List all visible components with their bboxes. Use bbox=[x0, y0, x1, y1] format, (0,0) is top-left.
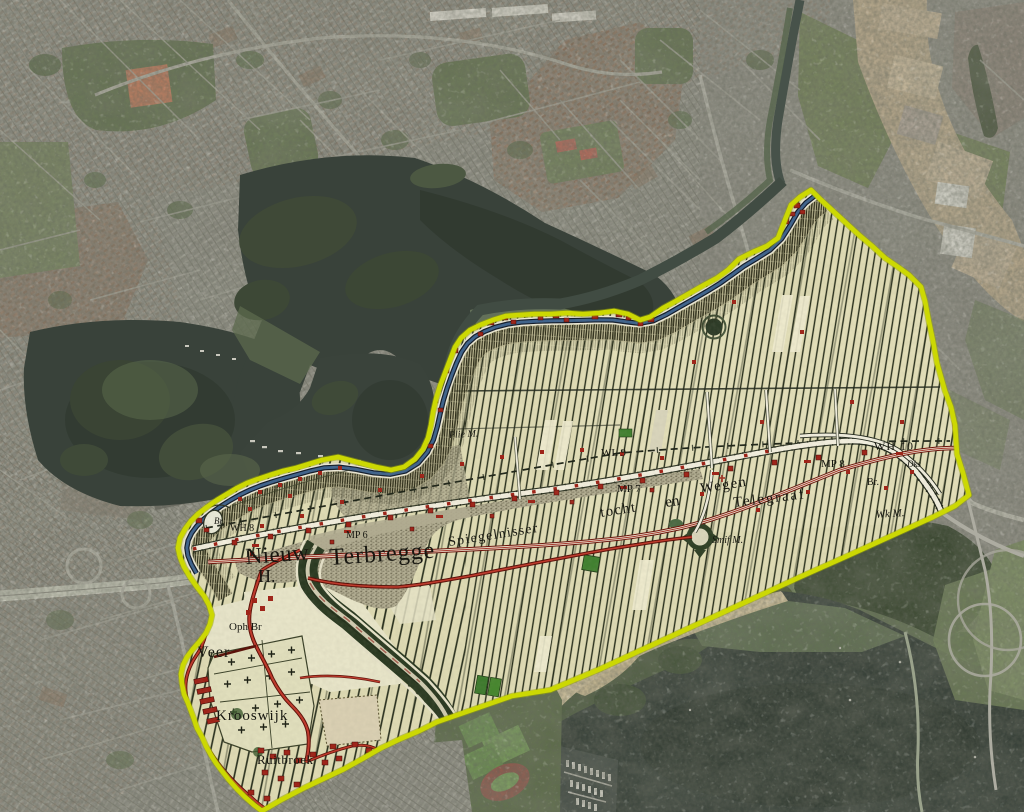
svg-text:Wk M.: Wk M. bbox=[875, 507, 904, 521]
svg-text:WL 9: WL 9 bbox=[601, 447, 626, 459]
svg-text:Ruitbroek: Ruitbroek bbox=[257, 752, 314, 767]
svg-text:WH 10: WH 10 bbox=[874, 439, 914, 453]
svg-text:H.: H. bbox=[258, 566, 276, 586]
svg-text:Plie M.: Plie M. bbox=[448, 428, 479, 441]
svg-text:MP 7: MP 7 bbox=[617, 483, 641, 495]
svg-text:Dks: Dks bbox=[906, 459, 921, 469]
svg-text:Br.: Br. bbox=[214, 516, 224, 526]
svg-text:MP 6: MP 6 bbox=[346, 530, 368, 541]
svg-text:Krooswijk: Krooswijk bbox=[216, 708, 288, 724]
svg-text:D.: D. bbox=[246, 549, 255, 559]
svg-text:MP 8: MP 8 bbox=[821, 458, 845, 470]
svg-text:Br.: Br. bbox=[867, 477, 879, 488]
svg-text:Smif M.: Smif M. bbox=[712, 535, 743, 546]
svg-text:WH 8: WH 8 bbox=[230, 523, 254, 534]
svg-text:Oph Br: Oph Br bbox=[229, 621, 262, 633]
svg-text:Veer: Veer bbox=[197, 644, 230, 661]
